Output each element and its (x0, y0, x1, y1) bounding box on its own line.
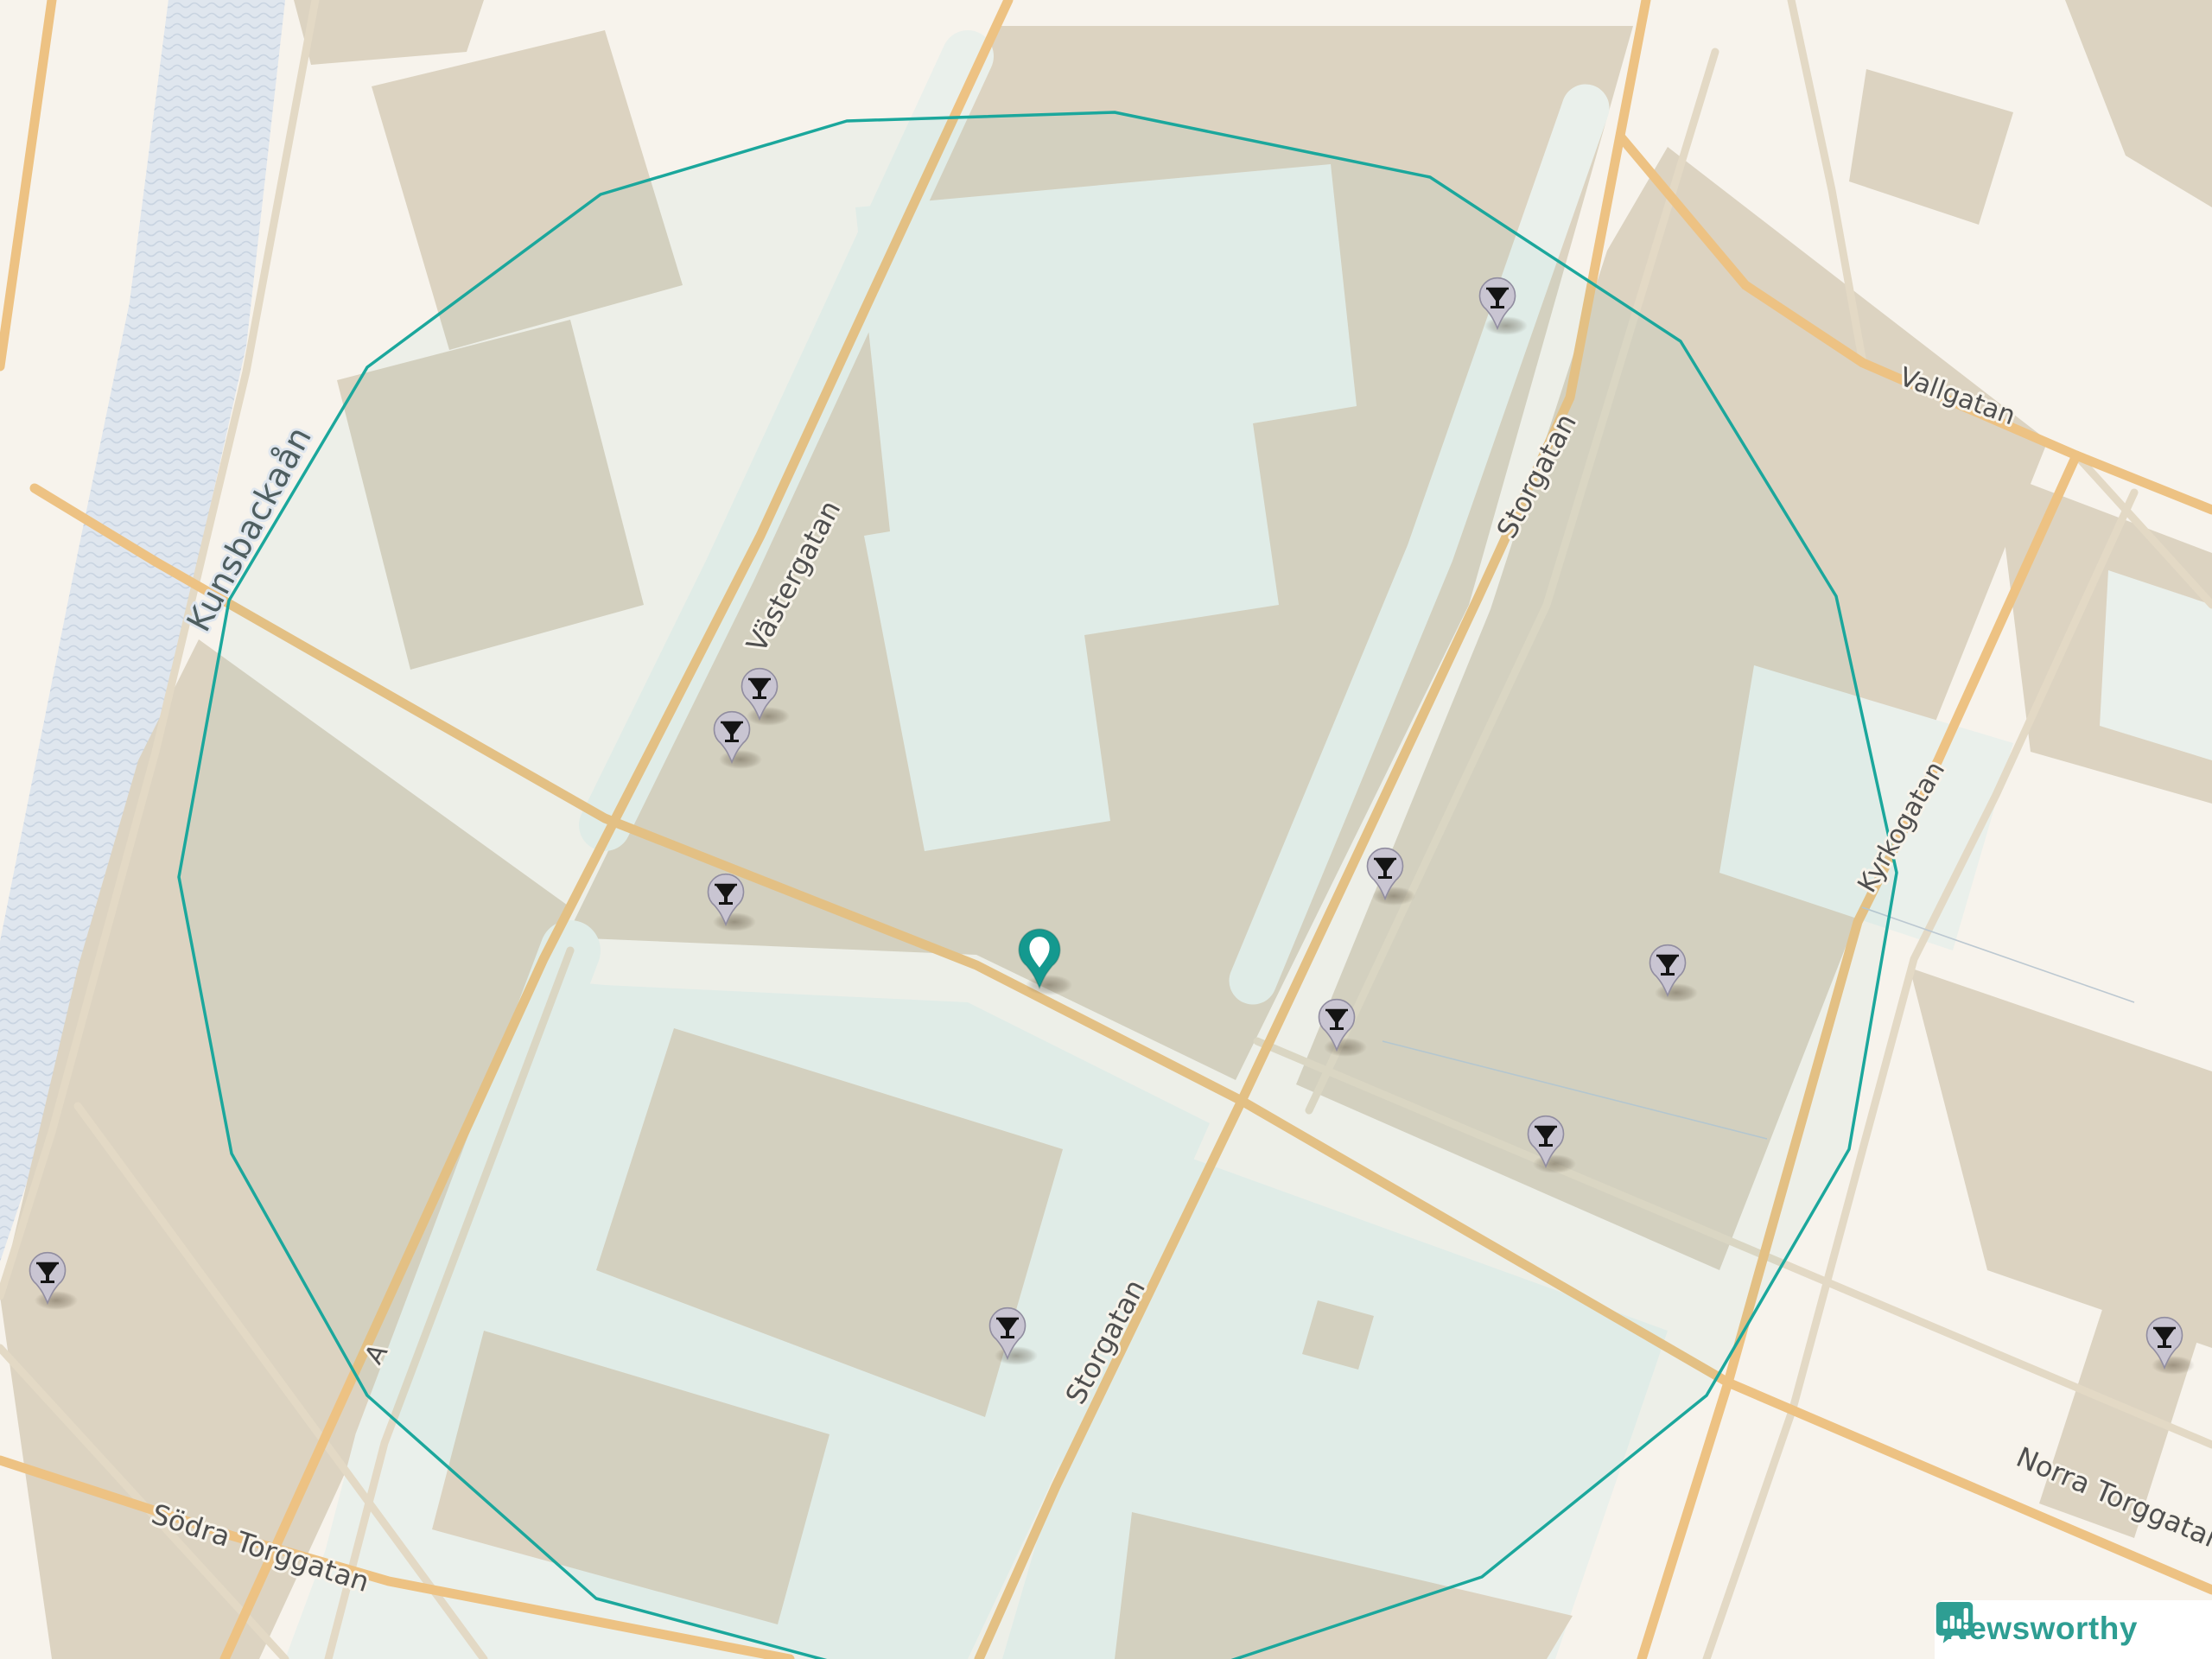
pin-shadow (713, 912, 756, 931)
pin-shadow (719, 750, 762, 769)
pin-shadow (1533, 1154, 1576, 1173)
pin-shadow (1372, 887, 1415, 906)
map-svg[interactable]: KunsbackaånVästergatanStorgatanVallgatan… (0, 0, 2212, 1659)
pin-shadow (2152, 1356, 2195, 1375)
pin-shadow (35, 1291, 78, 1310)
newsworthy-attribution[interactable]: Newsworthy (1935, 1600, 2212, 1659)
newsworthy-logo-icon (1935, 1600, 1974, 1643)
pin-shadow (1324, 1038, 1367, 1057)
pin-shadow (1484, 316, 1528, 335)
pin-shadow (1026, 975, 1072, 995)
pin-shadow (747, 707, 790, 726)
search-radius-overlay (179, 112, 1897, 1659)
pin-shadow (1655, 983, 1698, 1002)
pin-shadow (995, 1346, 1038, 1365)
map-canvas[interactable]: KunsbackaånVästergatanStorgatanVallgatan… (0, 0, 2212, 1659)
